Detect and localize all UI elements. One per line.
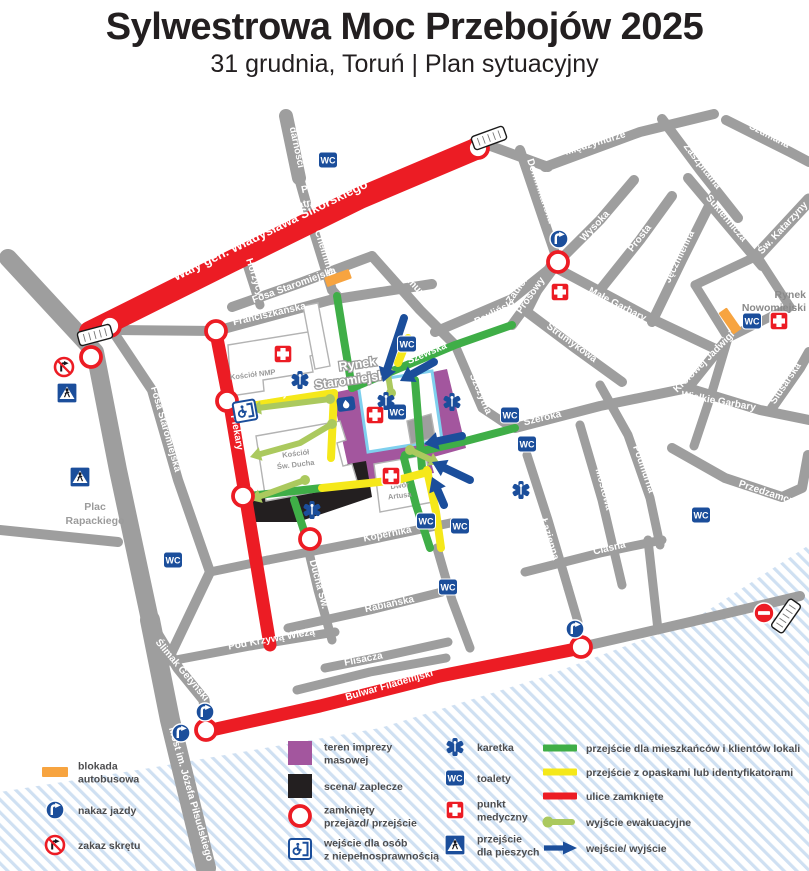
svg-text:WC: WC [400, 340, 415, 350]
legend-label: przejście dla mieszkańców i klientów lok… [586, 743, 800, 755]
yellow-route-swatch [543, 769, 577, 776]
label-małe-garbary: Małe Garbary [586, 285, 648, 324]
svg-text:WC: WC [390, 408, 405, 418]
legend-label: nakaz jazdy [78, 805, 137, 817]
medical-point-icon [274, 345, 292, 363]
wc-icon: WC [417, 513, 436, 529]
label-prosta: Prosta [626, 222, 654, 254]
road-lazienna-bulwar-link [568, 588, 578, 622]
medical-point-icon [770, 312, 788, 330]
green-route-swatch [543, 745, 577, 752]
legend-label: zakaz skrętu [78, 840, 140, 852]
svg-text:WC: WC [520, 440, 535, 450]
wc-icon: WC [439, 579, 458, 595]
legend-label: wejście dla osób [323, 838, 407, 850]
svg-text:WC: WC [694, 511, 709, 521]
wc-icon: WC [692, 507, 711, 523]
closed-crossing-icon [571, 637, 591, 657]
legend-label: scena/ zaplecze [324, 781, 403, 793]
legend-label: przejście z opaskami lub identyfikatoram… [586, 767, 793, 779]
closed-crossing-icon [290, 806, 310, 826]
legend-label: wyjście ewakuacyjne [585, 817, 691, 829]
event-area-swatch [288, 741, 312, 765]
accessible-entrance-icon [289, 839, 311, 859]
legend-label: autobusowa [78, 774, 139, 786]
legend-label: karetka [477, 742, 514, 754]
no-entry-icon [754, 603, 774, 623]
label-św.-katarzyny: Św. Katarzyny [755, 198, 809, 257]
svg-text:WC: WC [453, 522, 468, 532]
label-wysoka: Wysoka [578, 208, 612, 243]
svg-text:WC: WC [448, 774, 463, 784]
label-rapackiego: Rapackiego [66, 515, 125, 527]
mandatory-turn-icon [46, 801, 64, 819]
wc-icon: WC [518, 436, 537, 452]
pedestrian-crossing-icon [57, 383, 77, 403]
bus-block-marker [42, 767, 68, 777]
legend-label: blokada [78, 761, 118, 773]
pedestrian-crossing-icon [445, 835, 465, 855]
legend-label: przejście [477, 834, 522, 846]
closed-crossing-icon [81, 347, 101, 367]
event-map-poster: Sylwestrowa Moc Przebojów 2025 31 grudni… [0, 0, 809, 871]
legend-label: toalety [477, 773, 511, 785]
legend-label: masowej [324, 755, 368, 767]
label-fosa-staromiejska: Fosa Staromiejska [148, 385, 183, 473]
closed-crossing-icon [548, 252, 568, 272]
mandatory-turn-icon [566, 620, 584, 638]
road-fosa-w-link [168, 572, 210, 660]
label-kopernika: Kopernika [362, 524, 413, 544]
wc-icon: WC [501, 407, 520, 423]
closed-crossing-icon [300, 529, 320, 549]
label-ducha-św.: Ducha Św. [307, 558, 333, 610]
accessible-entrance-icon [232, 399, 257, 423]
legend-label: teren imprezy [324, 742, 392, 754]
ambulance-icon [512, 481, 530, 499]
label-jęczmienna: Jęczmienna [662, 229, 697, 285]
label-rabiańska: Rabiańska [364, 594, 416, 615]
svg-text:WC: WC [745, 317, 760, 327]
legend-label: punkt [477, 799, 506, 811]
legend-item: WCtoalety [446, 770, 512, 786]
mandatory-turn-icon [172, 724, 190, 742]
legend-label: ulice zamknięte [586, 791, 664, 803]
svg-text:WC: WC [166, 556, 181, 566]
road-rapackiego-stub [0, 530, 118, 542]
poster-subtitle: 31 grudnia, Toruń | Plan sytuacyjny [0, 50, 809, 79]
wc-icon: WC [319, 152, 338, 168]
svg-text:WC: WC [419, 517, 434, 527]
svg-text:WC: WC [321, 156, 336, 166]
no-turn-icon [46, 836, 64, 854]
wc-icon: WC [451, 518, 470, 534]
legend-label: medyczny [477, 812, 528, 824]
label-rynek: Rynek [774, 289, 806, 301]
closed-crossing-icon [196, 720, 216, 740]
water-point-icon [336, 396, 356, 412]
svg-text:WC: WC [441, 583, 456, 593]
mandatory-turn-icon [550, 230, 568, 248]
mandatory-turn-icon [196, 703, 214, 721]
road-rynek-nowomiejski-n [695, 256, 757, 285]
closed-crossing-icon [206, 321, 226, 341]
road-ciasna-bulwar-link [648, 540, 658, 630]
legend-label: zamknięty [324, 805, 375, 817]
poster-title: Sylwestrowa Moc Przebojów 2025 [0, 6, 809, 49]
label-ślusarska: Ślusarska [766, 359, 803, 406]
red-route-swatch [543, 793, 577, 800]
label-strumykowa: Strumykowa [544, 321, 599, 365]
no-turn-icon [55, 358, 73, 376]
label-flisacza: Flisacza [343, 650, 384, 668]
medical-point-icon [446, 801, 464, 819]
label-plac: Plac [84, 501, 106, 513]
entry-exit-arrow [432, 460, 470, 480]
situational-map: Wały gen. Władysława SikorskiegoPlacTeat… [0, 0, 809, 871]
poster-header: Sylwestrowa Moc Przebojów 2025 31 grudni… [0, 0, 809, 79]
svg-text:WC: WC [503, 411, 518, 421]
pedestrian-crossing-icon [70, 467, 90, 487]
wc-icon: WC [743, 313, 762, 329]
medical-point-icon [366, 406, 384, 424]
medical-point-icon [551, 283, 569, 301]
closed-crossing-icon [233, 486, 253, 506]
legend-label: dla pieszych [477, 847, 539, 859]
medical-point-icon [382, 467, 400, 485]
legend-label: przejazd/ przejście [324, 818, 417, 830]
wc-icon: WC [164, 552, 183, 568]
wc-icon: WC [446, 770, 465, 786]
legend-item: blokadaautobusowa [42, 761, 139, 786]
legend-label: z niepełnosprawnością [324, 851, 439, 863]
legend-label: wejście/ wyjście [585, 843, 667, 855]
stage-swatch [288, 774, 312, 798]
wc-icon: WC [398, 336, 417, 352]
legend-column-1: blokadaautobusowanakaz jazdyzakaz skrętu [42, 761, 140, 855]
